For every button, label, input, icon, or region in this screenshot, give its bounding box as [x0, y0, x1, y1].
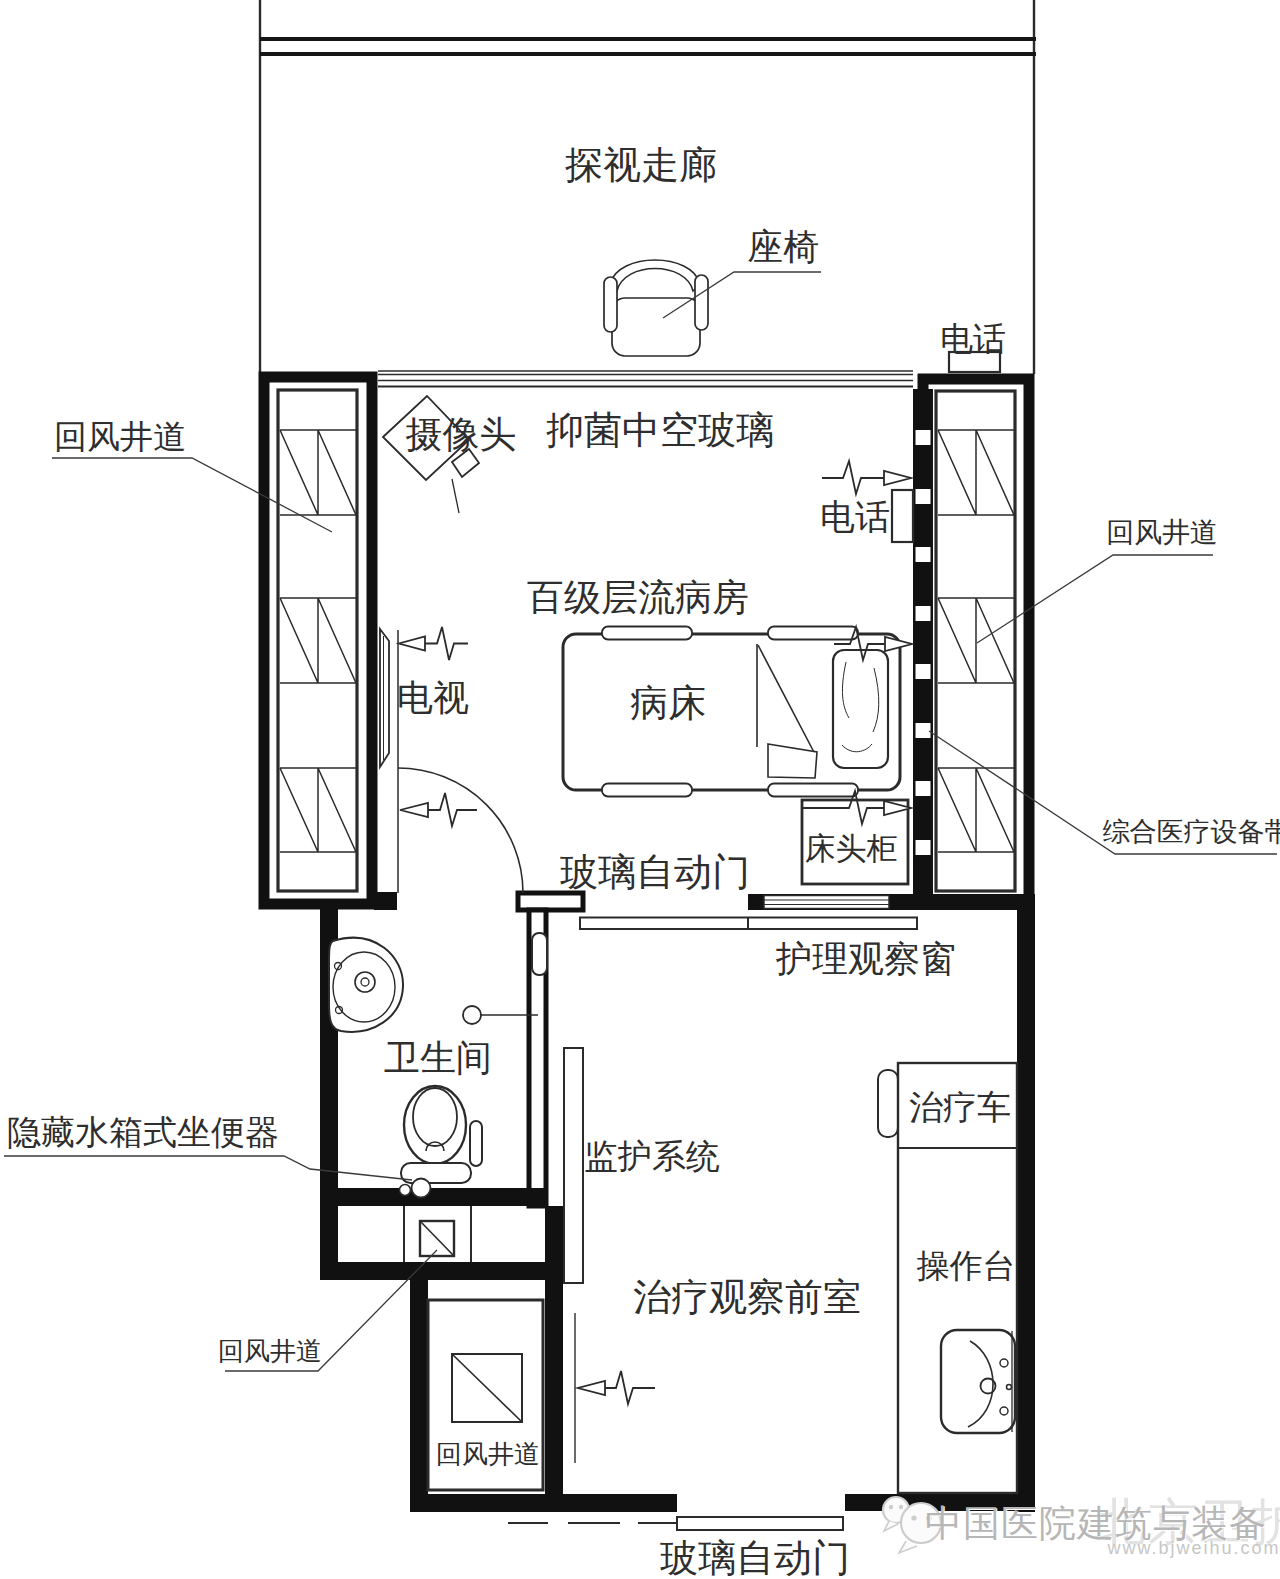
sliding-door-panel [580, 918, 917, 930]
cabinet-label: 床头柜 [805, 833, 898, 864]
tv-symbol [380, 629, 389, 767]
medical-equipment-belt [913, 389, 933, 910]
anteroom-label: 治疗观察前室 [633, 1278, 861, 1316]
door-closer [532, 933, 547, 975]
visitor-chair [604, 260, 708, 356]
bottom-door [508, 1517, 843, 1530]
chair-label: 座椅 [747, 229, 819, 265]
observation-window [764, 896, 889, 909]
ward-label: 百级层流病房 [527, 579, 749, 616]
toilet [400, 1086, 483, 1198]
watermark-brand: 中国医院建筑与装备 [925, 1505, 1267, 1542]
monitor-label: 监护系统 [584, 1140, 720, 1174]
left-return-air-shaft [264, 377, 372, 904]
bathroom-door-arc [398, 630, 523, 893]
toilet-label: 隐藏水箱式坐便器 [7, 1116, 279, 1150]
glass-label: 抑菌中空玻璃 [546, 411, 774, 449]
treatment-cart [878, 1070, 898, 1137]
wash-basin [329, 938, 403, 1032]
left-shaft-label: 回风井道 [54, 421, 186, 454]
corridor-label: 探视走廊 [565, 146, 717, 184]
lower-duct-room [404, 1206, 471, 1262]
hospital-bed [563, 627, 900, 797]
ward-phone-symbol [892, 490, 913, 542]
worktop-label: 操作台 [917, 1250, 1016, 1283]
right-shaft-label: 回风井道 [1106, 519, 1218, 547]
monitor-panel [564, 1048, 583, 1463]
watermark-url: www.bjweihu.com [1107, 1539, 1280, 1557]
equipment-belt-label: 综合医疗设备带 [1103, 819, 1280, 846]
right-return-air-shaft [923, 379, 1029, 903]
bed-label: 病床 [630, 684, 706, 722]
pillow [833, 650, 888, 768]
ward-phone-label: 电话 [820, 500, 890, 535]
floor-plan-page: 北京卫护 中国医院建筑与装备 www.bjweihu.com 探视走廊 座椅 电… [0, 0, 1280, 1579]
observation-window-label: 护理观察窗 [776, 941, 956, 977]
anteroom-sink [941, 1330, 1015, 1433]
ward-door-label: 玻璃自动门 [560, 853, 750, 891]
lower-left-shaft-label: 回风井道 [218, 1339, 322, 1365]
antibacterial-glass-wall [378, 371, 913, 387]
cart-label: 治疗车 [909, 1091, 1011, 1125]
floor-plan-drawing [0, 0, 1280, 1579]
corridor-phone-label: 电话 [940, 323, 1006, 356]
bottom-door-label: 玻璃自动门 [660, 1539, 850, 1577]
camera-label: 摄像头 [406, 416, 517, 453]
lower-shaft-label: 回风井道 [436, 1442, 540, 1468]
tv-label: 电视 [397, 680, 469, 716]
bathroom-label: 卫生间 [384, 1040, 492, 1076]
